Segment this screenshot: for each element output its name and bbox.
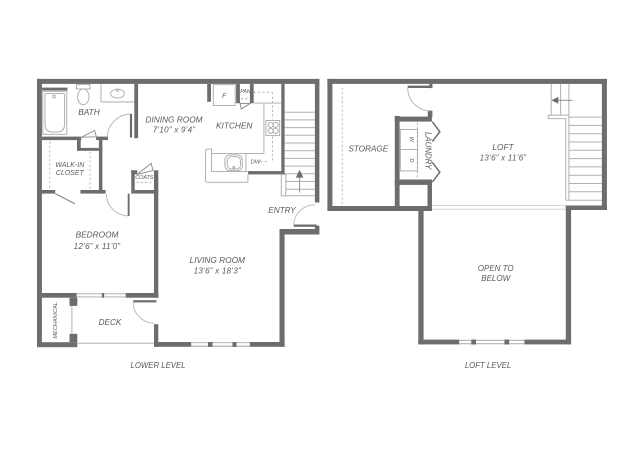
svg-text:DECK: DECK (99, 318, 122, 327)
svg-text:MECHANICAL: MECHANICAL (53, 302, 59, 339)
svg-text:LOFT: LOFT (492, 142, 514, 152)
svg-text:STORAGE: STORAGE (348, 145, 388, 154)
svg-text:7’10” x 9’4”: 7’10” x 9’4” (153, 125, 196, 134)
svg-text:BEDROOM: BEDROOM (76, 229, 119, 239)
svg-text:OPEN TO: OPEN TO (478, 264, 514, 273)
svg-text:LAUNDRY: LAUNDRY (423, 132, 432, 170)
svg-text:PAN: PAN (240, 89, 251, 95)
svg-text:LOWER LEVEL: LOWER LEVEL (130, 361, 185, 370)
svg-text:COATS: COATS (135, 175, 154, 181)
svg-text:ENTRY: ENTRY (268, 206, 296, 215)
svg-text:DW: DW (250, 160, 261, 166)
svg-text:12’6” x 11’0”: 12’6” x 11’0” (74, 242, 121, 251)
svg-text:13’6” x 11’6”: 13’6” x 11’6” (480, 154, 527, 163)
svg-text:BATH: BATH (78, 107, 100, 117)
svg-text:13’6” x 18’3”: 13’6” x 18’3” (194, 267, 241, 276)
svg-text:DINING ROOM: DINING ROOM (145, 114, 202, 124)
svg-text:CLOSET: CLOSET (56, 170, 85, 177)
svg-text:W: W (408, 137, 414, 143)
svg-text:LOFT LEVEL: LOFT LEVEL (465, 361, 511, 370)
svg-text:LIVING ROOM: LIVING ROOM (190, 255, 245, 265)
svg-text:KITCHEN: KITCHEN (216, 120, 252, 130)
svg-text:BELOW: BELOW (481, 274, 511, 283)
svg-text:WALK-IN: WALK-IN (55, 162, 85, 169)
svg-text:D: D (408, 158, 414, 162)
